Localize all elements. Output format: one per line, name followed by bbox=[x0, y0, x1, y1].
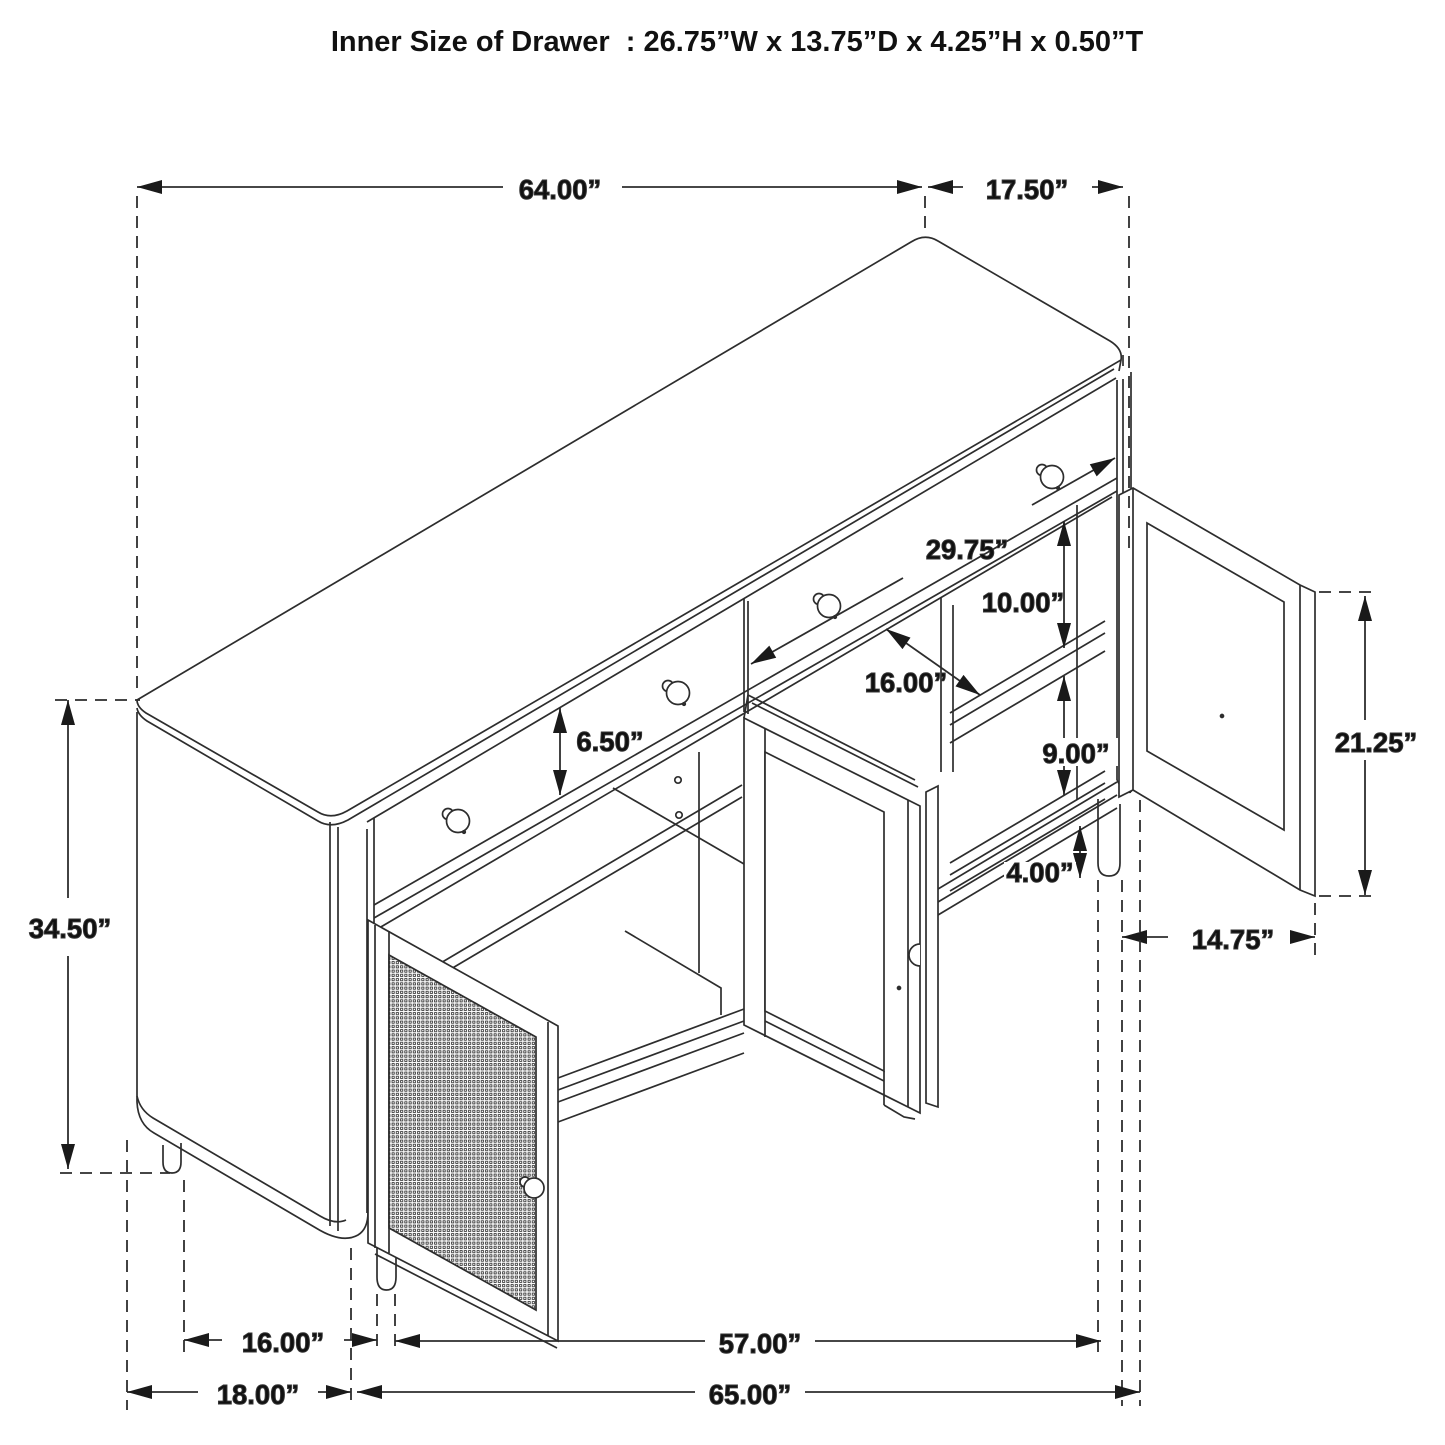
svg-text:10.00”: 10.00” bbox=[982, 587, 1065, 618]
svg-text:4.00”: 4.00” bbox=[1006, 857, 1073, 888]
svg-text:6.50”: 6.50” bbox=[576, 726, 643, 757]
svg-text:29.75”: 29.75” bbox=[926, 534, 1009, 565]
svg-text:16.00”: 16.00” bbox=[865, 667, 948, 698]
svg-text:9.00”: 9.00” bbox=[1042, 738, 1109, 769]
svg-text:34.50”: 34.50” bbox=[29, 913, 112, 944]
svg-text:16.00”: 16.00” bbox=[242, 1327, 325, 1358]
svg-text:21.25”: 21.25” bbox=[1335, 727, 1418, 758]
svg-text:17.50”: 17.50” bbox=[986, 174, 1069, 205]
svg-text:18.00”: 18.00” bbox=[217, 1379, 300, 1410]
svg-text:65.00”: 65.00” bbox=[709, 1379, 792, 1410]
svg-text:64.00”: 64.00” bbox=[519, 174, 602, 205]
svg-text:Inner Size of Drawer : 26.75”: Inner Size of Drawer : 26.75”W x 13.75”D… bbox=[331, 26, 1144, 58]
svg-text:57.00”: 57.00” bbox=[719, 1328, 802, 1359]
svg-text:14.75”: 14.75” bbox=[1192, 924, 1275, 955]
